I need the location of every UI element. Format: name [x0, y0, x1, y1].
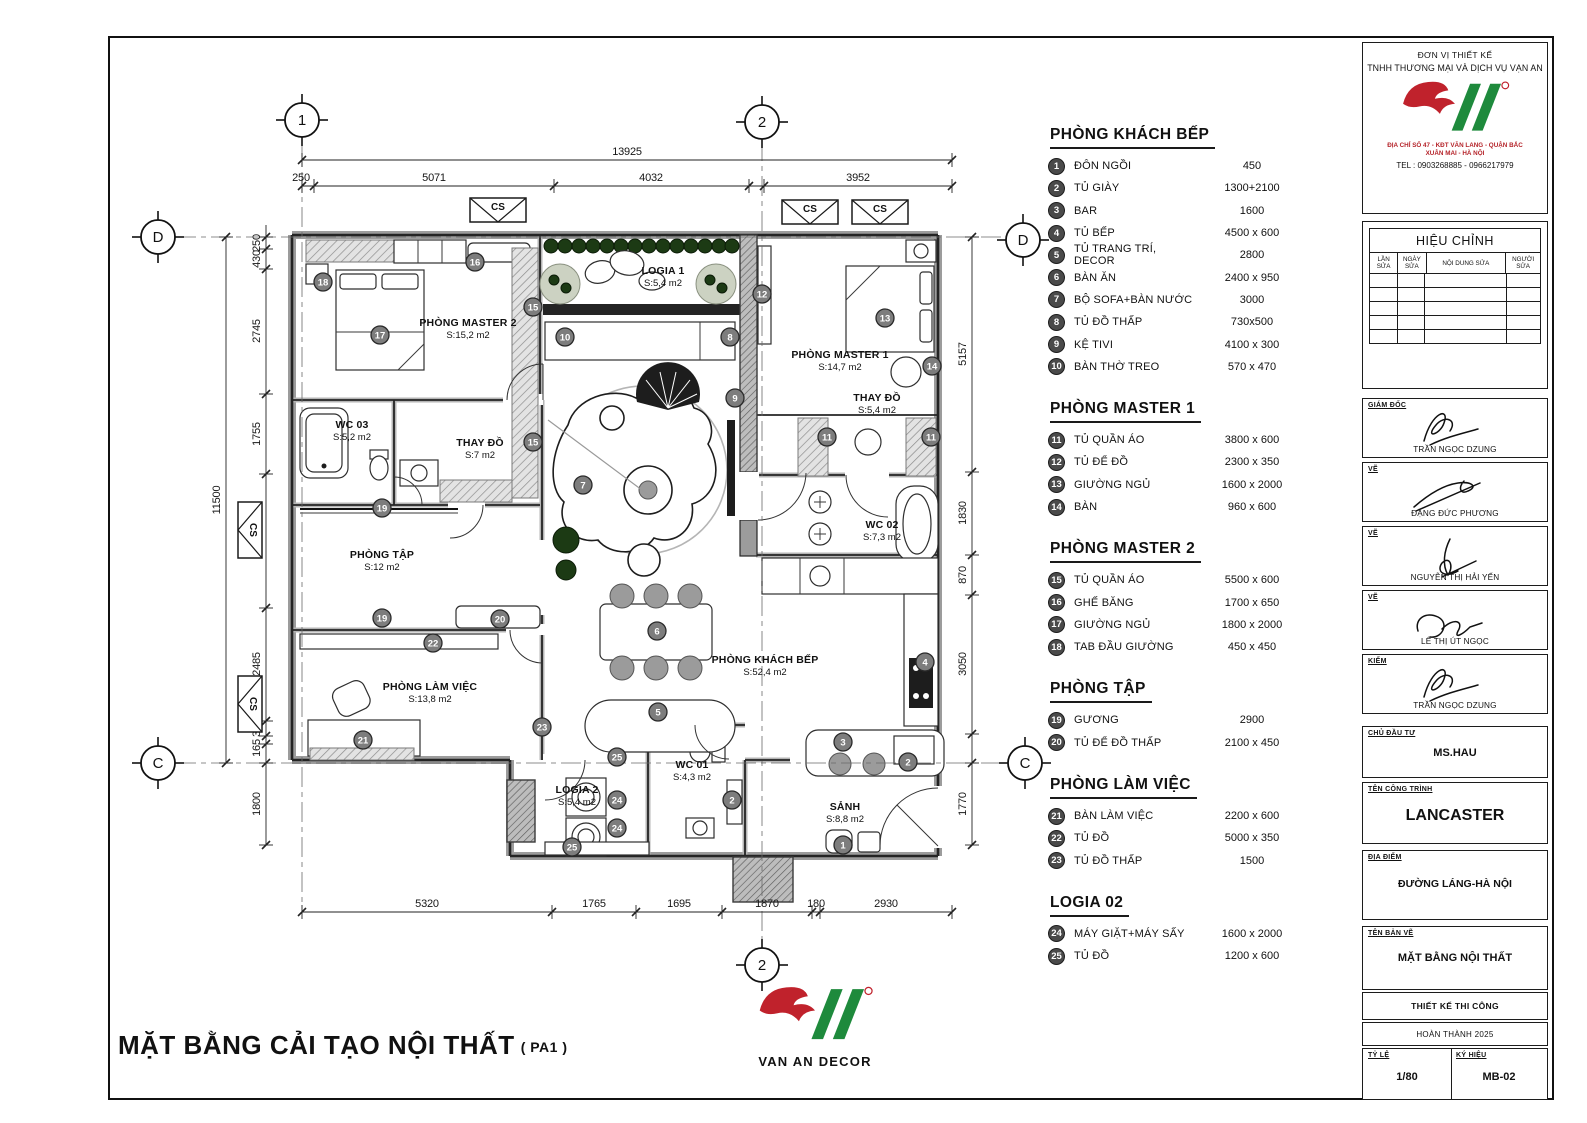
cabinet-25 — [545, 842, 649, 855]
dimension-label: 180 — [807, 898, 825, 910]
svg-text:24: 24 — [612, 795, 623, 806]
revision-empty-row — [1370, 302, 1540, 316]
room-area: S:4,3 m2 — [673, 772, 711, 783]
completion-year: HOÀN THÀNH 2025 — [1363, 1023, 1547, 1045]
svg-text:24: 24 — [612, 823, 623, 834]
svg-text:22: 22 — [428, 638, 439, 649]
legend-item-size: 3000 — [1200, 294, 1304, 306]
legend-item-number: 5 — [1048, 247, 1065, 264]
legend-item-number: 13 — [1048, 476, 1065, 493]
grid-bubble-C: C — [999, 737, 1051, 789]
room-area: S:5,4 m2 — [558, 797, 596, 808]
field-label: TÊN BẢN VẼ — [1368, 930, 1413, 937]
dimension-label: 165 — [251, 739, 263, 757]
plant-pot — [696, 264, 736, 304]
legend-section-title: PHÒNG LÀM VIỆC — [1050, 776, 1197, 799]
legend-item: 21BÀN LÀM VIỆC2200 x 600 — [1048, 805, 1304, 827]
cabinet-22 — [300, 634, 498, 649]
company-tel: TEL : 0903268885 - 0966217979 — [1363, 161, 1547, 170]
legend-item-size: 1300+2100 — [1200, 182, 1304, 194]
column-hatch — [507, 780, 535, 842]
callout-15: 15 — [524, 433, 542, 451]
wardrobe-15 — [512, 248, 538, 498]
legend-item-number: 12 — [1048, 454, 1065, 471]
legend-item-label: TỦ ĐỂ ĐỒ THẤP — [1074, 737, 1200, 749]
window-marker-cs: CS — [852, 200, 908, 224]
svg-text:20: 20 — [495, 614, 506, 625]
callout-11: 11 — [818, 428, 836, 446]
wardrobe-niche — [306, 240, 394, 262]
drawing-title: MẶT BẰNG CẢI TẠO NỘI THẤT( PA1 ) — [118, 1030, 568, 1061]
room-area: S:15,2 m2 — [446, 330, 489, 341]
legend-item-size: 2300 x 350 — [1200, 456, 1304, 468]
revision-col-header: NỘI DUNG SỬA — [1427, 253, 1507, 273]
window-marker-cs: CS — [782, 200, 838, 224]
dimension-label: 2745 — [251, 319, 263, 343]
legend-item-size: 4500 x 600 — [1200, 227, 1304, 239]
field-label: CHỦ ĐẦU TƯ — [1368, 730, 1415, 737]
dimension-label: 1695 — [667, 898, 691, 910]
signature-box: GIÁM ĐỐCTRẦN NGỌC DZUNG — [1362, 398, 1548, 458]
svg-text:15: 15 — [528, 437, 539, 448]
legend-item-size: 1200 x 600 — [1200, 950, 1304, 962]
room-area: S:7 m2 — [465, 450, 495, 461]
legend-item-number: 7 — [1048, 291, 1065, 308]
svg-text:CS: CS — [247, 523, 258, 537]
window-marker-cs: CS — [238, 502, 262, 558]
legend-item-label: TỦ ĐỒ THẤP — [1074, 855, 1200, 867]
legend-item-size: 2100 x 450 — [1200, 737, 1304, 749]
callout-5: 5 — [649, 703, 667, 721]
svg-text:15: 15 — [528, 302, 539, 313]
legend-item-size: 1600 — [1200, 205, 1304, 217]
callout-10: 10 — [556, 328, 574, 346]
room-label: THAY ĐỒ — [853, 391, 901, 404]
furniture-legend: PHÒNG KHÁCH BẾP1ĐÔN NGỒI4502TỦ GIÀY1300+… — [1048, 126, 1304, 989]
titleblock-field: TÊN CÔNG TRÌNHLANCASTER — [1362, 782, 1548, 844]
titleblock-field: ĐỊA ĐIỂMĐƯỜNG LÁNG-HÀ NỘI — [1362, 850, 1548, 920]
legend-item-label: GIƯỜNG NGỦ — [1074, 479, 1200, 491]
legend-item-size: 450 — [1200, 160, 1304, 172]
legend-item: 14BÀN960 x 600 — [1048, 496, 1304, 518]
scale-box: TỶ LỆ 1/80 KÝ HIỆU MB-02 — [1362, 1048, 1548, 1100]
room-area: S:14,7 m2 — [818, 362, 861, 373]
svg-text:19: 19 — [377, 613, 388, 624]
legend-item-number: 10 — [1048, 358, 1065, 375]
legend-item-label: TỦ ĐỒ — [1074, 832, 1200, 844]
dimension-label: 1830 — [957, 501, 969, 525]
signature-name: TRẦN NGỌC DZUNG — [1363, 445, 1547, 454]
legend-item-number: 18 — [1048, 639, 1065, 656]
signature-name: TRẦN NGỌC DZUNG — [1363, 701, 1547, 710]
legend-item-size: 2200 x 600 — [1200, 810, 1304, 822]
field-label: ĐỊA ĐIỂM — [1368, 854, 1402, 861]
svg-text:11: 11 — [822, 432, 833, 443]
legend-item-label: GIƯỜNG NGỦ — [1074, 619, 1200, 631]
dimension-label: 430 — [251, 250, 263, 268]
legend-section-title: PHÒNG MASTER 2 — [1050, 540, 1201, 563]
room-label: WC 01 — [675, 759, 708, 771]
legend-item-number: 20 — [1048, 734, 1065, 751]
legend-item-number: 1 — [1048, 158, 1065, 175]
legend-item-size: 1600 x 2000 — [1200, 479, 1304, 491]
legend-item-label: TỦ ĐỂ ĐỒ — [1074, 456, 1200, 468]
callout-1: 1 — [834, 836, 852, 854]
dimension-label: 5157 — [957, 342, 969, 366]
legend-item-label: TỦ QUẦN ÁO — [1074, 434, 1200, 446]
legend-item: 23TỦ ĐỒ THẤP1500 — [1048, 850, 1304, 872]
dimension-label: 2930 — [874, 898, 898, 910]
van-an-logo-icon — [755, 982, 875, 1048]
legend-item: 17GIƯỜNG NGỦ1800 x 2000 — [1048, 614, 1304, 636]
svg-text:2: 2 — [758, 957, 766, 974]
revision-title: HIỆU CHỈNH — [1370, 229, 1540, 253]
legend-item: 4TỦ BẾP4500 x 600 — [1048, 222, 1304, 244]
scale-label: TỶ LỆ — [1368, 1052, 1389, 1059]
legend-section-title: PHÒNG TẬP — [1050, 680, 1152, 703]
legend-section-title: PHÒNG MASTER 1 — [1050, 400, 1201, 423]
svg-text:19: 19 — [377, 503, 388, 514]
legend-item-number: 22 — [1048, 830, 1065, 847]
room-label: LOGIA 1 — [641, 265, 684, 277]
legend-section: PHÒNG MASTER 215TỦ QUẦN ÁO5500 x 60016GH… — [1048, 540, 1304, 658]
signature-name: NGUYỄN THỊ HẢI YẾN — [1363, 573, 1547, 582]
company-name: TNHH THƯƠNG MẠI VÀ DỊCH VỤ VẠN AN — [1363, 63, 1547, 73]
room-label: PHÒNG TẬP — [350, 548, 414, 561]
revision-col-header: NGÀY SỬA — [1398, 253, 1426, 273]
callout-25: 25 — [608, 748, 626, 766]
signature-name: LÊ THỊ ÚT NGỌC — [1363, 637, 1547, 646]
code-label: KÝ HIỆU — [1456, 1052, 1487, 1059]
kitchen-counter-4 — [762, 558, 938, 594]
legend-item: 5TỦ TRANG TRÍ, DECOR2800 — [1048, 244, 1304, 266]
callout-4: 4 — [916, 653, 934, 671]
callout-18: 18 — [314, 273, 332, 291]
room-area: S:12 m2 — [364, 562, 399, 573]
legend-item-number: 3 — [1048, 202, 1065, 219]
svg-text:4: 4 — [922, 657, 928, 668]
legend-item-label: KỆ TIVI — [1074, 339, 1200, 351]
legend-item-size: 3800 x 600 — [1200, 434, 1304, 446]
svg-text:11: 11 — [926, 432, 937, 443]
signature-role: KIỂM — [1368, 658, 1387, 665]
svg-text:9: 9 — [732, 393, 737, 404]
legend-item-number: 8 — [1048, 314, 1065, 331]
legend-item-number: 14 — [1048, 499, 1065, 516]
legend-item-number: 25 — [1048, 948, 1065, 965]
dimension-label: 1770 — [957, 792, 969, 816]
legend-item: 3BAR1600 — [1048, 200, 1304, 222]
svg-text:3: 3 — [840, 737, 845, 748]
plant-pot — [540, 264, 580, 304]
legend-item-number: 24 — [1048, 925, 1065, 942]
callout-3: 3 — [834, 733, 852, 751]
legend-item: 12TỦ ĐỂ ĐỒ2300 x 350 — [1048, 451, 1304, 473]
svg-text:D: D — [1018, 232, 1029, 249]
dimension-label: 5320 — [415, 898, 439, 910]
revision-empty-row — [1370, 274, 1540, 288]
svg-text:CS: CS — [247, 697, 258, 711]
dimension-label: 1870 — [755, 898, 779, 910]
tv-unit-9 — [727, 420, 735, 516]
dimension-label: 1755 — [251, 422, 263, 446]
legend-item-size: 1800 x 2000 — [1200, 619, 1304, 631]
callout-9: 9 — [726, 389, 744, 407]
legend-item-number: 21 — [1048, 808, 1065, 825]
svg-text:8: 8 — [727, 332, 732, 343]
room-label: PHÒNG MASTER 2 — [419, 316, 516, 329]
legend-item-label: BÀN LÀM VIỆC — [1074, 810, 1200, 822]
logia1-window-band — [543, 304, 740, 315]
field-value: LANCASTER — [1363, 807, 1547, 825]
drawing-code: MB-02 — [1451, 1071, 1547, 1083]
room-label: WC 03 — [335, 419, 368, 431]
legend-section: LOGIA 0224MÁY GIẶT+MÁY SẤY1600 x 200025T… — [1048, 894, 1304, 968]
signature-name: ĐẶNG ĐỨC PHƯƠNG — [1363, 509, 1547, 518]
svg-text:12: 12 — [757, 289, 768, 300]
legend-item-label: BAR — [1074, 205, 1200, 217]
room-area: S:5,2 m2 — [333, 432, 371, 443]
window-marker-cs: CS — [238, 676, 262, 732]
legend-item: 8TỦ ĐỒ THẤP730x500 — [1048, 311, 1304, 333]
titleblock-field: CHỦ ĐẦU TƯMS.HAU — [1362, 726, 1548, 778]
dimension-label: 11500 — [211, 486, 223, 515]
legend-item: 1ĐÔN NGỒI450 — [1048, 155, 1304, 177]
room-label: WC 02 — [865, 519, 898, 531]
signature-box: VẼĐẶNG ĐỨC PHƯƠNG — [1362, 462, 1548, 522]
dimension-label: 250 — [292, 172, 310, 184]
room-label: THAY ĐỒ — [456, 436, 504, 449]
legend-section-title: LOGIA 02 — [1050, 894, 1129, 917]
revision-empty-row — [1370, 316, 1540, 330]
legend-section: PHÒNG MASTER 111TỦ QUẦN ÁO3800 x 60012TỦ… — [1048, 400, 1304, 518]
svg-text:C: C — [153, 755, 164, 772]
legend-item: 10BÀN THỜ TREO570 x 470 — [1048, 356, 1304, 378]
drawing-sheet: 1392525050714032395253201765169518701802… — [0, 0, 1587, 1123]
legend-item-label: BÀN ĂN — [1074, 272, 1200, 284]
closet-thaydo2 — [440, 480, 512, 502]
stool-thaydo1 — [855, 429, 881, 455]
dimension-label: 4032 — [639, 172, 663, 184]
room-area: S:7,3 m2 — [863, 532, 901, 543]
signature-role: VẼ — [1368, 594, 1378, 601]
callout-15: 15 — [524, 298, 542, 316]
svg-text:13: 13 — [880, 313, 891, 324]
wardrobe-11a — [798, 418, 828, 476]
legend-item: 11TỦ QUẦN ÁO3800 x 600 — [1048, 429, 1304, 451]
revision-col-header: LẦN SỬA — [1370, 253, 1398, 273]
callout-25: 25 — [563, 838, 581, 856]
room-area: S:8,8 m2 — [826, 814, 864, 825]
room-label: PHÒNG LÀM VIỆC — [383, 680, 478, 693]
legend-item-label: TỦ ĐỒ THẤP — [1074, 316, 1200, 328]
kitchen-sink — [810, 566, 830, 586]
legend-item-number: 9 — [1048, 336, 1065, 353]
callout-11: 11 — [922, 428, 940, 446]
legend-item-label: GƯƠNG — [1074, 714, 1200, 726]
legend-item-size: 960 x 600 — [1200, 501, 1304, 513]
svg-text:23: 23 — [537, 722, 548, 733]
svg-text:1: 1 — [298, 112, 306, 129]
revision-box: HIỆU CHỈNH LẦN SỬANGÀY SỬANỘI DUNG SỬANG… — [1362, 221, 1548, 389]
callout-24: 24 — [608, 819, 626, 837]
dimension-label: 3050 — [957, 652, 969, 676]
legend-item-label: BỘ SOFA+BÀN NƯỚC — [1074, 294, 1200, 306]
legend-item-label: GHẾ BĂNG — [1074, 597, 1200, 609]
grid-bubble-1: 1 — [276, 94, 328, 146]
svg-text:2: 2 — [905, 757, 910, 768]
company-address: ĐỊA CHỈ SỐ 47 - KĐT VĂN LANG - QUẬN BẮC … — [1363, 142, 1547, 158]
svg-text:25: 25 — [612, 752, 623, 763]
legend-item-size: 570 x 470 — [1200, 361, 1304, 373]
room-area: S:5,4 m2 — [644, 278, 682, 289]
wardrobe-11b — [906, 418, 936, 476]
legend-item-label: TỦ GIÀY — [1074, 182, 1200, 194]
svg-text:6: 6 — [654, 626, 659, 637]
table-14 — [891, 357, 921, 387]
dimension-label: 1765 — [582, 898, 606, 910]
field-value: MẶT BẰNG NỘI THẤT — [1363, 952, 1547, 964]
callout-21: 21 — [354, 731, 372, 749]
field-value: MS.HAU — [1363, 747, 1547, 759]
legend-item-label: TAB ĐẦU GIƯỜNG — [1074, 641, 1200, 653]
svg-text:CS: CS — [873, 204, 887, 215]
room-label: LOGIA 2 — [555, 784, 598, 796]
legend-item-size: 1600 x 2000 — [1200, 928, 1304, 940]
callout-6: 6 — [648, 622, 666, 640]
brand-logo: VAN AN DECOR — [740, 982, 890, 1069]
fan-decor — [636, 362, 700, 410]
legend-item-size: 4100 x 300 — [1200, 339, 1304, 351]
callout-23: 23 — [533, 718, 551, 736]
signature-role: VẼ — [1368, 466, 1378, 473]
floor-plan: 1392525050714032395253201765169518701802… — [0, 0, 1587, 1123]
legend-item: 24MÁY GIẶT+MÁY SẤY1600 x 2000 — [1048, 923, 1304, 945]
legend-item: 13GIƯỜNG NGỦ1600 x 2000 — [1048, 474, 1304, 496]
dimension-label: 2485 — [251, 652, 263, 676]
legend-item-label: BÀN — [1074, 501, 1200, 513]
callout-7: 7 — [574, 476, 592, 494]
svg-text:21: 21 — [358, 735, 369, 746]
grid-bubble-2: 2 — [736, 96, 788, 148]
titleblock-field: TÊN BẢN VẼMẶT BẰNG NỘI THẤT — [1362, 926, 1548, 990]
svg-text:10: 10 — [560, 332, 571, 343]
structural-wall-hatch — [740, 235, 757, 472]
scale-value: 1/80 — [1363, 1071, 1451, 1083]
legend-item-number: 23 — [1048, 852, 1065, 869]
svg-text:C: C — [1020, 755, 1031, 772]
legend-item-label: TỦ TRANG TRÍ, DECOR — [1074, 243, 1200, 267]
design-unit-label: ĐƠN VỊ THIẾT KẾ — [1363, 50, 1547, 60]
design-stage-box: THIẾT KẾ THI CÔNG — [1362, 992, 1548, 1020]
legend-item: 18TAB ĐẦU GIƯỜNG450 x 450 — [1048, 636, 1304, 658]
signature-box: VẼNGUYỄN THỊ HẢI YẾN — [1362, 526, 1548, 586]
legend-item-number: 19 — [1048, 712, 1065, 729]
legend-item-number: 2 — [1048, 180, 1065, 197]
signature-box: VẼLÊ THỊ ÚT NGỌC — [1362, 590, 1548, 650]
callout-16: 16 — [466, 253, 484, 271]
room-label: SẢNH — [830, 800, 861, 813]
grid-bubble-C: C — [132, 737, 184, 789]
legend-item-number: 16 — [1048, 594, 1065, 611]
svg-text:CS: CS — [491, 202, 505, 213]
desk-chair — [330, 678, 373, 720]
legend-section-title: PHÒNG KHÁCH BẾP — [1050, 126, 1215, 149]
dimension-label: 870 — [957, 566, 969, 584]
callout-20: 20 — [491, 610, 509, 628]
legend-item-number: 11 — [1048, 432, 1065, 449]
design-stage: THIẾT KẾ THI CÔNG — [1363, 993, 1547, 1019]
callout-19: 19 — [373, 499, 391, 517]
legend-item: 9KỆ TIVI4100 x 300 — [1048, 333, 1304, 355]
room-area: S:13,8 m2 — [408, 694, 451, 705]
legend-item-label: TỦ BẾP — [1074, 227, 1200, 239]
legend-section: PHÒNG KHÁCH BẾP1ĐÔN NGỒI4502TỦ GIÀY1300+… — [1048, 126, 1304, 378]
grid-bubble-D: D — [132, 211, 184, 263]
svg-text:2: 2 — [729, 795, 734, 806]
field-label: TÊN CÔNG TRÌNH — [1368, 786, 1432, 793]
svg-text:7: 7 — [580, 480, 585, 491]
svg-text:17: 17 — [375, 330, 386, 341]
legend-item: 25TỦ ĐỒ1200 x 600 — [1048, 945, 1304, 967]
legend-item-label: TỦ QUẦN ÁO — [1074, 574, 1200, 586]
legend-item: 19GƯƠNG2900 — [1048, 709, 1304, 731]
field-value: ĐƯỜNG LÁNG-HÀ NỘI — [1363, 878, 1547, 890]
legend-item-number: 6 — [1048, 269, 1065, 286]
dimension-label: 5071 — [422, 172, 446, 184]
svg-text:14: 14 — [927, 361, 938, 372]
svg-text:2: 2 — [758, 114, 766, 131]
legend-item: 22TỦ ĐỒ5000 x 350 — [1048, 827, 1304, 849]
revision-empty-row — [1370, 330, 1540, 343]
sink-wc03 — [411, 465, 427, 481]
legend-item-size: 1700 x 650 — [1200, 597, 1304, 609]
company-logo — [1399, 77, 1511, 139]
legend-item-label: BÀN THỜ TREO — [1074, 361, 1200, 373]
svg-text:5: 5 — [655, 707, 661, 718]
legend-item-size: 5500 x 600 — [1200, 574, 1304, 586]
dimension-label: 13925 — [612, 146, 642, 158]
room-area: S:5,4 m2 — [858, 405, 896, 416]
dimension-label: 1800 — [251, 792, 263, 816]
revision-col-header: NGƯỜI SỬA — [1506, 253, 1540, 273]
legend-item: 20TỦ ĐỂ ĐỒ THẤP2100 x 450 — [1048, 732, 1304, 754]
revision-empty-row — [1370, 288, 1540, 302]
svg-text:18: 18 — [318, 277, 329, 288]
room-label: PHÒNG KHÁCH BẾP — [712, 653, 819, 666]
callout-22: 22 — [424, 634, 442, 652]
legend-section: PHÒNG LÀM VIỆC21BÀN LÀM VIỆC2200 x 60022… — [1048, 776, 1304, 872]
callout-14: 14 — [923, 357, 941, 375]
legend-item-size: 1500 — [1200, 855, 1304, 867]
legend-item-label: ĐÔN NGỒI — [1074, 160, 1200, 172]
dimension-label: 250 — [251, 234, 263, 252]
window-marker-cs: CS — [470, 198, 526, 222]
legend-item: 2TỦ GIÀY1300+2100 — [1048, 177, 1304, 199]
legend-item: 7BỘ SOFA+BÀN NƯỚC3000 — [1048, 289, 1304, 311]
legend-item: 6BÀN ĂN2400 x 950 — [1048, 266, 1304, 288]
completion-box: HOÀN THÀNH 2025 — [1362, 1022, 1548, 1046]
callout-8: 8 — [721, 328, 739, 346]
signature-box: KIỂMTRẦN NGỌC DZUNG — [1362, 654, 1548, 714]
grid-bubble-D: D — [997, 214, 1049, 266]
callout-12: 12 — [753, 285, 771, 303]
legend-item-size: 2800 — [1200, 249, 1304, 261]
title-block: ĐƠN VỊ THIẾT KẾ TNHH THƯƠNG MẠI VÀ DỊCH … — [1362, 42, 1548, 1100]
legend-item-number: 15 — [1048, 572, 1065, 589]
plant-row — [544, 239, 739, 253]
callout-2: 2 — [899, 753, 917, 771]
